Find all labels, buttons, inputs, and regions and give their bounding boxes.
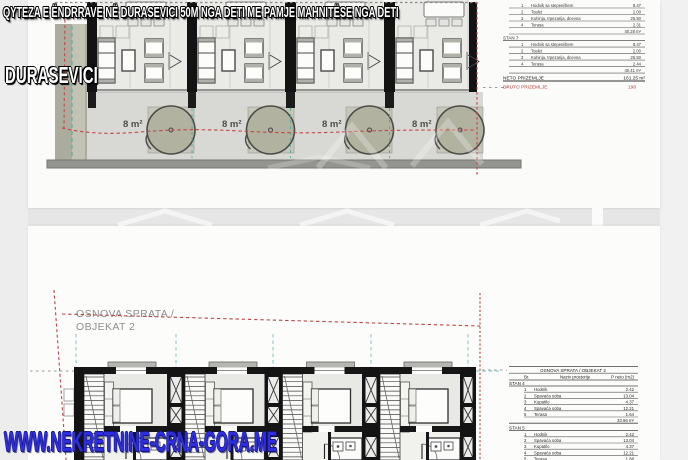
svg-text:1: 1 [524, 432, 527, 437]
svg-text:1.88: 1.88 [626, 457, 635, 460]
svg-text:4.37: 4.37 [626, 400, 635, 405]
svg-text:STAN 5: STAN 5 [509, 426, 525, 431]
svg-text:2: 2 [521, 48, 524, 53]
svg-text:8 m²: 8 m² [322, 119, 342, 130]
svg-text:Br.: Br. [524, 375, 529, 380]
svg-text:1: 1 [521, 42, 524, 47]
svg-text:Spavaća soba: Spavaća soba [534, 450, 562, 455]
svg-text:Toalet: Toalet [531, 48, 543, 53]
svg-text:2: 2 [524, 438, 527, 443]
svg-text:STAN 4: STAN 4 [509, 381, 525, 386]
svg-text:Spavaća soba: Spavaća soba [534, 438, 562, 443]
svg-text:Terasa: Terasa [534, 412, 548, 417]
svg-text:Kupatilo: Kupatilo [534, 400, 550, 405]
svg-text:Kuhinja, trpezarija, dnevna: Kuhinja, trpezarija, dnevna [531, 55, 581, 60]
svg-text:2.42: 2.42 [626, 432, 635, 437]
svg-text:3: 3 [524, 444, 527, 449]
svg-text:8 m²: 8 m² [222, 119, 242, 130]
svg-text:5: 5 [524, 412, 527, 417]
svg-text:Kuhinja, trpezarija, dnevna: Kuhinja, trpezarija, dnevna [531, 16, 581, 21]
svg-text:4: 4 [521, 61, 524, 66]
svg-text:Hodnik: Hodnik [534, 387, 548, 392]
svg-text:Spavaća soba: Spavaća soba [534, 406, 562, 411]
svg-text:OSNOVA SPRATA / OBJEKAT 2: OSNOVA SPRATA / OBJEKAT 2 [540, 368, 606, 373]
svg-text:BRUTO PRIZEMLJE: BRUTO PRIZEMLJE [503, 85, 547, 91]
svg-text:Hodnik: Hodnik [534, 432, 548, 437]
svg-text:Terasa: Terasa [531, 22, 544, 27]
svg-text:Hodnik sa stepeništem: Hodnik sa stepeništem [531, 42, 574, 47]
svg-text:Naziv prostorije: Naziv prostorije [560, 375, 591, 380]
svg-text:33.66 m²: 33.66 m² [617, 418, 635, 423]
svg-text:4.37: 4.37 [626, 444, 635, 449]
svg-text:12.21: 12.21 [623, 450, 634, 455]
svg-text:4: 4 [524, 450, 527, 455]
svg-text:1.64: 1.64 [626, 412, 635, 417]
svg-text:12.21: 12.21 [623, 406, 634, 411]
svg-text:2: 2 [521, 9, 524, 14]
svg-text:1: 1 [521, 3, 524, 8]
svg-text:STAN 7: STAN 7 [503, 35, 519, 40]
svg-text:OSNOVA SPRATA /: OSNOVA SPRATA / [76, 308, 174, 320]
svg-text:Spavaća soba: Spavaća soba [534, 393, 562, 398]
svg-text:5: 5 [524, 457, 527, 460]
svg-text:8 m²: 8 m² [412, 119, 432, 130]
svg-text:3: 3 [521, 16, 524, 21]
svg-text:Kupatilo: Kupatilo [534, 444, 550, 449]
svg-text:8 m²: 8 m² [123, 119, 143, 130]
svg-text:4: 4 [524, 406, 527, 411]
svg-text:2.44: 2.44 [633, 61, 642, 66]
svg-text:8.47: 8.47 [633, 42, 642, 47]
svg-text:198: 198 [628, 85, 636, 91]
svg-text:2.31: 2.31 [633, 22, 642, 27]
svg-text:3: 3 [524, 400, 527, 405]
svg-text:2.00: 2.00 [633, 48, 642, 53]
svg-text:40.28 m²: 40.28 m² [624, 29, 641, 34]
svg-text:25.50: 25.50 [631, 16, 642, 21]
svg-text:40.41 m²: 40.41 m² [624, 68, 641, 73]
svg-text:13.04: 13.04 [623, 393, 634, 398]
svg-text:2.42: 2.42 [626, 387, 635, 392]
svg-text:8.47: 8.47 [633, 3, 642, 8]
svg-text:Terasa: Terasa [534, 457, 548, 460]
svg-text:Terasa: Terasa [531, 61, 544, 66]
svg-text:P neto (m2): P neto (m2) [611, 375, 634, 380]
svg-text:2: 2 [524, 393, 527, 398]
svg-text:2.00: 2.00 [633, 9, 642, 14]
svg-text:13.04: 13.04 [623, 438, 634, 443]
svg-text:OBJEKAT 2: OBJEKAT 2 [76, 321, 135, 333]
svg-text:1: 1 [524, 387, 527, 392]
svg-text:4: 4 [521, 22, 524, 27]
svg-text:Toalet: Toalet [531, 9, 543, 14]
svg-text:Hodnik sa stepeništem: Hodnik sa stepeništem [531, 3, 574, 8]
svg-text:25.50: 25.50 [631, 55, 642, 60]
svg-text:3: 3 [521, 55, 524, 60]
